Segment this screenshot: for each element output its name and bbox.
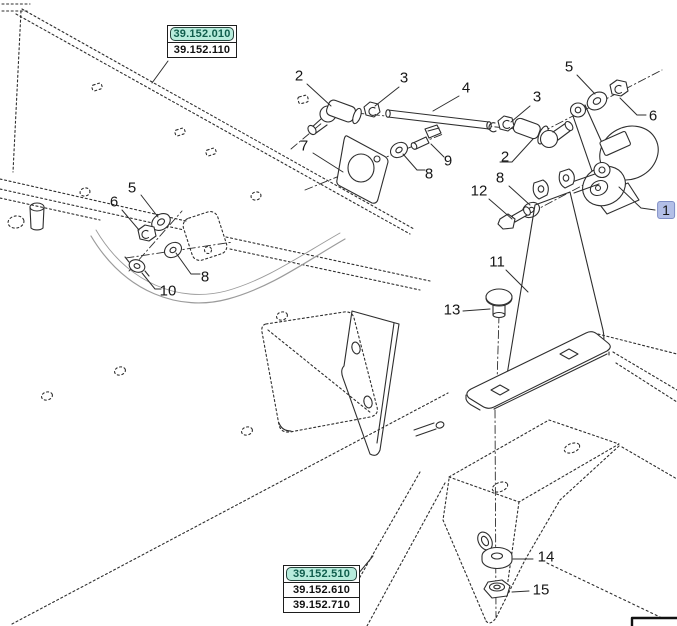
- callout-8-left[interactable]: 8: [201, 270, 209, 285]
- callout-9[interactable]: 9: [444, 154, 452, 169]
- leader-lines: [122, 61, 655, 592]
- callout-3-right[interactable]: 3: [533, 90, 541, 105]
- callout-14[interactable]: 14: [538, 550, 555, 565]
- part-ref-link[interactable]: 39.152.710: [284, 597, 359, 612]
- callout-13[interactable]: 13: [444, 303, 461, 318]
- access-hole: [262, 312, 378, 432]
- clamp-10: [125, 257, 149, 276]
- callout-12[interactable]: 12: [471, 184, 488, 199]
- lower-plate: [342, 311, 495, 552]
- bolt-9: [410, 125, 441, 150]
- callout-5-right[interactable]: 5: [565, 60, 573, 75]
- callout-1-selected[interactable]: 1: [657, 201, 675, 219]
- diagram-linework: [0, 0, 677, 626]
- callout-11[interactable]: 11: [489, 255, 505, 270]
- part-ref-highlight[interactable]: 39.152.510: [286, 567, 357, 581]
- part-ref-link[interactable]: 39.152.110: [168, 42, 236, 57]
- nut-15: [484, 580, 510, 598]
- callout-6-left[interactable]: 6: [110, 195, 118, 210]
- ball-joint-right: [512, 117, 574, 148]
- part-ref-active[interactable]: 39.152.010: [168, 26, 236, 42]
- callout-4[interactable]: 4: [462, 81, 470, 96]
- adjuster-plate: [337, 136, 388, 203]
- ref-box-top: 39.152.010 39.152.110: [167, 25, 237, 58]
- washer-5-right: [584, 88, 610, 113]
- nut-6-right: [610, 80, 628, 96]
- ref-box-bottom: 39.152.510 39.152.610 39.152.710: [283, 565, 360, 613]
- panel-hidden-outline: [0, 4, 677, 626]
- callout-15[interactable]: 15: [533, 583, 550, 598]
- carriage-bolt-13: [486, 289, 512, 318]
- callout-3-left[interactable]: 3: [400, 71, 408, 86]
- page-frame-corner: [632, 618, 677, 626]
- callout-5-left[interactable]: 5: [128, 181, 136, 196]
- washer-14: [482, 548, 512, 569]
- washer-8-mid: [388, 139, 411, 160]
- part-ref-highlight[interactable]: 39.152.010: [170, 27, 234, 41]
- part-ref-active[interactable]: 39.152.510: [284, 566, 359, 582]
- callout-6-right[interactable]: 6: [649, 109, 657, 124]
- callout-8-mid[interactable]: 8: [425, 167, 433, 182]
- rod-4: [386, 110, 496, 132]
- callout-8-right[interactable]: 8: [496, 171, 504, 186]
- nut-6-left: [138, 225, 156, 241]
- part-ref-link[interactable]: 39.152.610: [284, 582, 359, 597]
- washer-8-left: [162, 239, 185, 260]
- ball-joint-left: [306, 99, 363, 136]
- callout-2-right[interactable]: 2: [501, 150, 509, 165]
- callout-2-left[interactable]: 2: [295, 69, 303, 84]
- callout-10[interactable]: 10: [160, 284, 177, 299]
- exploded-parts-diagram: 39.152.010 39.152.110 39.152.510 39.152.…: [0, 0, 677, 626]
- callout-7[interactable]: 7: [300, 139, 308, 154]
